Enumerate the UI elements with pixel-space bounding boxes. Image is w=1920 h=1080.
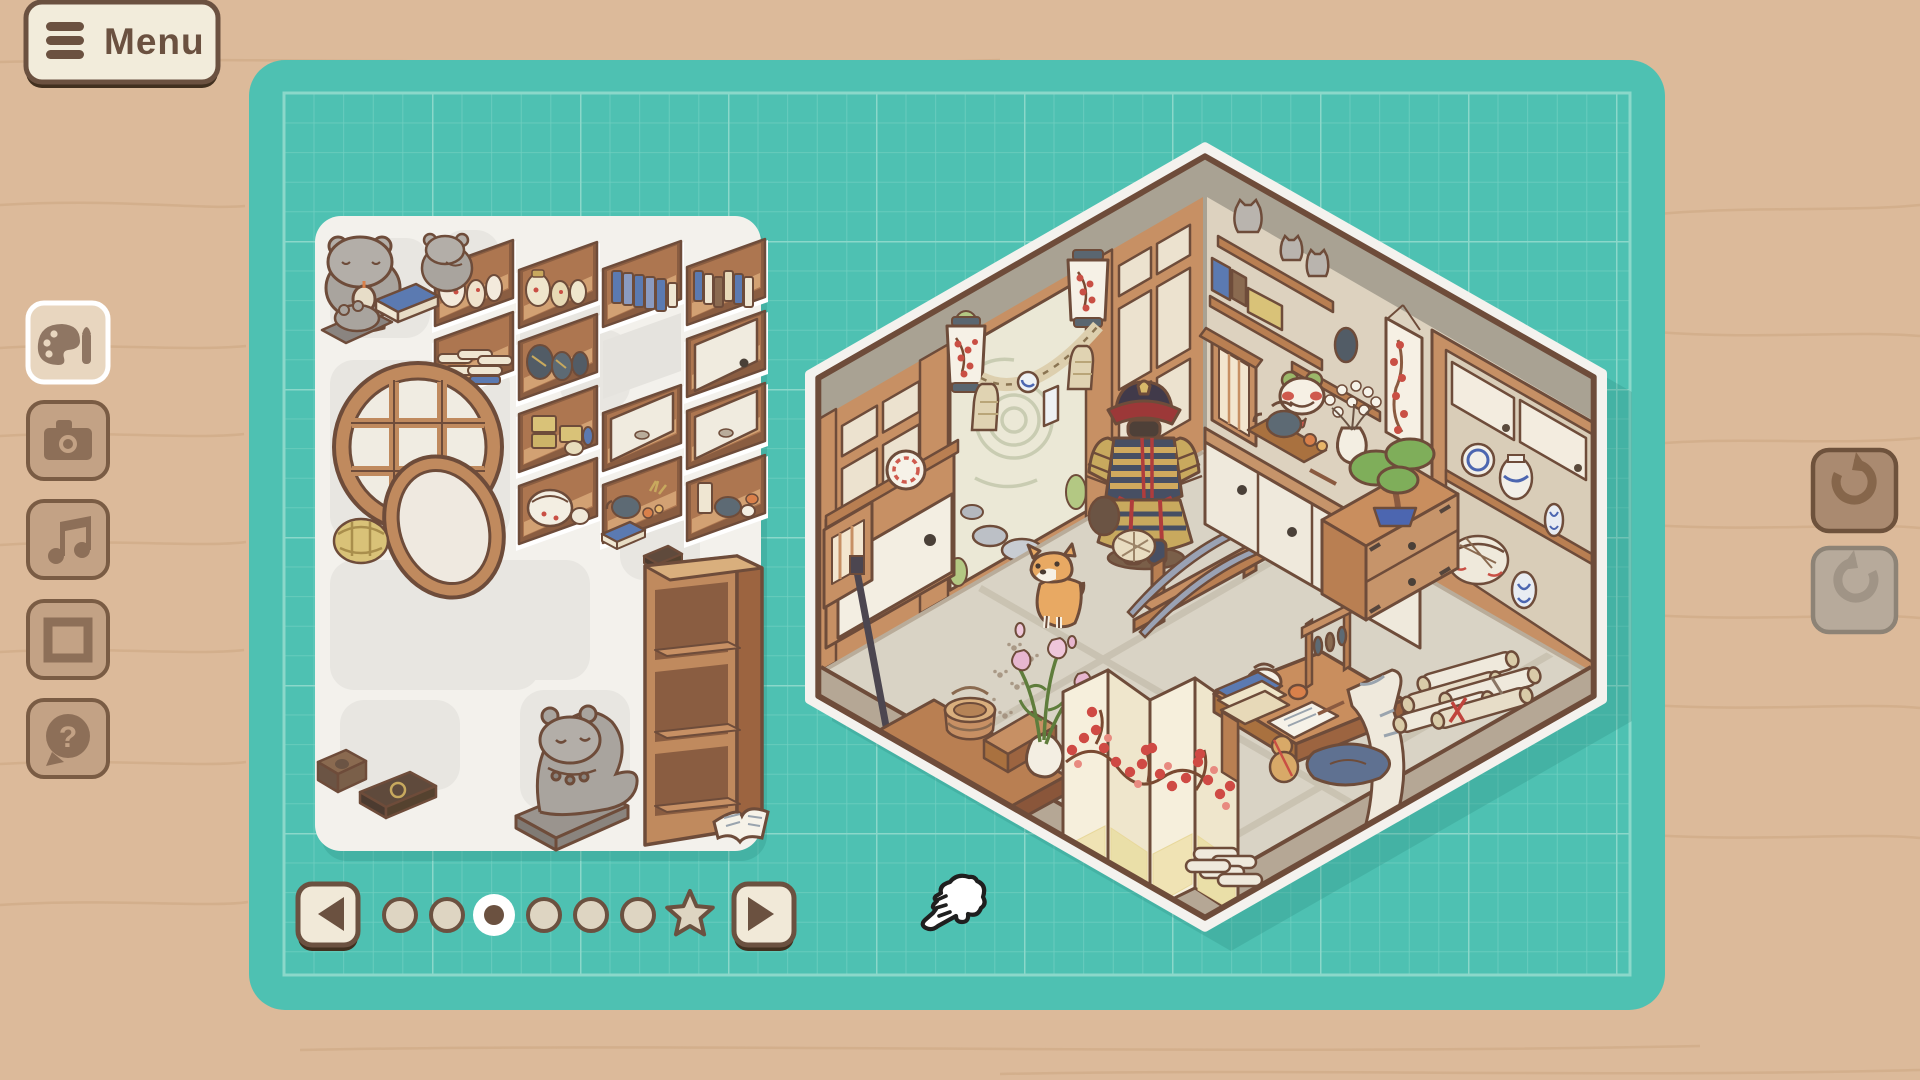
svg-text:?: ?	[59, 721, 77, 754]
svg-text:Menu: Menu	[104, 21, 205, 62]
